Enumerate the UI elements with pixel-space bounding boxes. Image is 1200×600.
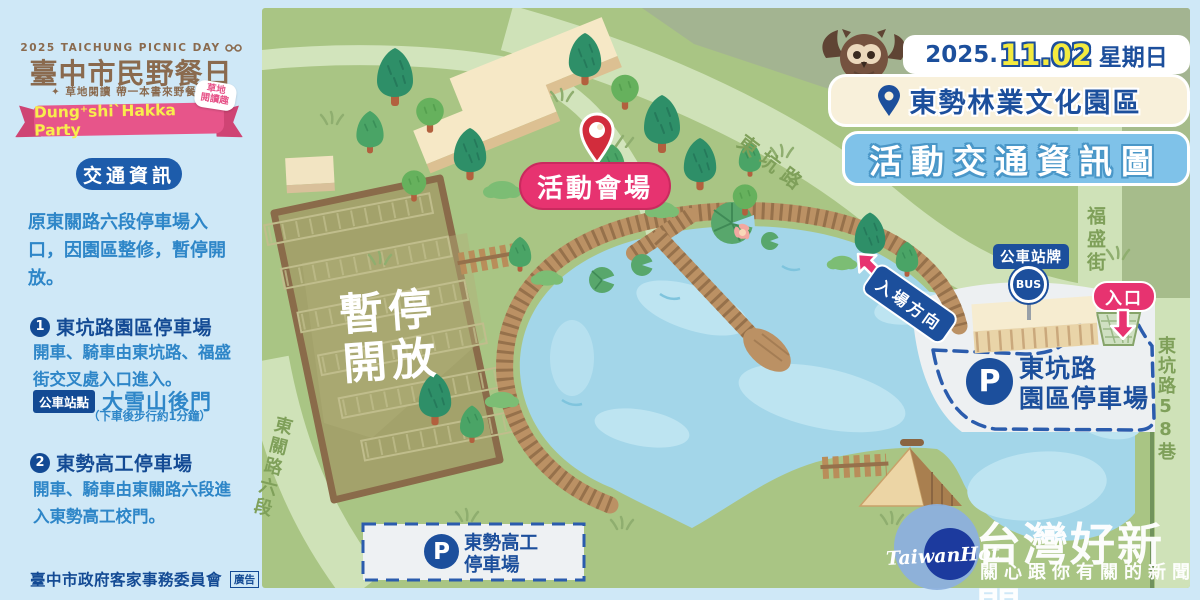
ad-label: 廣告 [230, 571, 259, 588]
parking1-p-icon: P [966, 358, 1013, 405]
traffic-info-button: 交通資訊 [76, 158, 182, 190]
parking1-label: 東坑路 園區停車場 [1019, 354, 1149, 413]
news-site-title: 台灣好新聞 [976, 508, 1200, 600]
bus-stop-note: （下車後步行約1分鐘） [88, 408, 211, 424]
news-site-slogan: 關心跟你有關的新聞 [980, 558, 1196, 584]
bus-stop-building [971, 296, 1098, 354]
poster: 2025 TAICHUNG PICNIC DAY 臺中市民野餐日 ✦ 草地閱讀 … [0, 0, 1200, 600]
closed-area-label: 暫停 開放 [303, 282, 477, 392]
parking1-line1: 東坑路 [1019, 354, 1149, 384]
map-title: 活動交通資訊圖 [869, 135, 1163, 183]
item-2-number: 2 [30, 453, 50, 473]
ribbon-text: Dung⁺shi`Hakka Party [34, 100, 225, 139]
sparkle-marks-icon [613, 130, 637, 148]
item-2-title: 東勢高工停車場 [56, 449, 193, 476]
date-prefix: 2025. [925, 42, 998, 68]
bus-sign: BUS [1010, 266, 1047, 303]
parking1-line2: 園區停車場 [1019, 384, 1149, 414]
venue-pin-icon [578, 111, 616, 165]
parking-item-1-heading: 1 東坑路園區停車場 [30, 313, 212, 340]
parking2-line1: 東勢高工 [464, 533, 538, 555]
parking-item-2-desc: 開車、騎車由東關路六段進入東勢高工校門。 [33, 476, 233, 530]
bus-stop-badge: 公車站點 [33, 390, 95, 413]
location-bar: 東勢林業文化園區 [828, 74, 1190, 127]
parking2-line2: 停車場 [464, 555, 538, 577]
location-name: 東勢林業文化園區 [910, 81, 1142, 120]
road-dongkeng-58: 東坑路58巷 [1152, 336, 1178, 462]
parking-item-1-desc: 開車、騎車由東坑路、福盛街交叉處入口進入。 [33, 339, 233, 393]
sidebar-footer: 臺中市政府客家事務委員會 廣告 [30, 568, 259, 590]
location-pin-icon [877, 85, 901, 117]
organizer-name: 臺中市政府客家事務委員會 [30, 568, 222, 590]
parking2-label: 東勢高工 停車場 [464, 533, 538, 577]
road-fusheng: 福盛街 [1082, 206, 1109, 275]
ribbon-band: Dung⁺shi`Hakka Party [34, 102, 225, 136]
item-1-title: 東坑路園區停車場 [56, 313, 212, 340]
item-1-number: 1 [30, 317, 50, 337]
parking-item-2-heading: 2 東勢高工停車場 [30, 449, 193, 476]
venue-label: 活動會場 [519, 162, 671, 210]
glasses-icon [225, 44, 242, 52]
bubble-line2: 閱讀趣 [200, 93, 230, 108]
map-title-bar: 活動交通資訊圖 [842, 131, 1190, 186]
date-number: 11.02 [1000, 38, 1092, 72]
date-bar: 2025. 11.02 星期日 [903, 35, 1190, 74]
closure-notice: 原東關路六段停車場入口，因園區整修，暫停開放。 [28, 209, 230, 293]
entrance-arrow-icon [1106, 308, 1140, 340]
hakka-ribbon: Dung⁺shi`Hakka Party 草地 閱讀趣 [18, 97, 240, 143]
small-building [285, 156, 335, 193]
parking2-p-icon: P [424, 534, 459, 569]
weekday: 星期日 [1099, 38, 1168, 72]
